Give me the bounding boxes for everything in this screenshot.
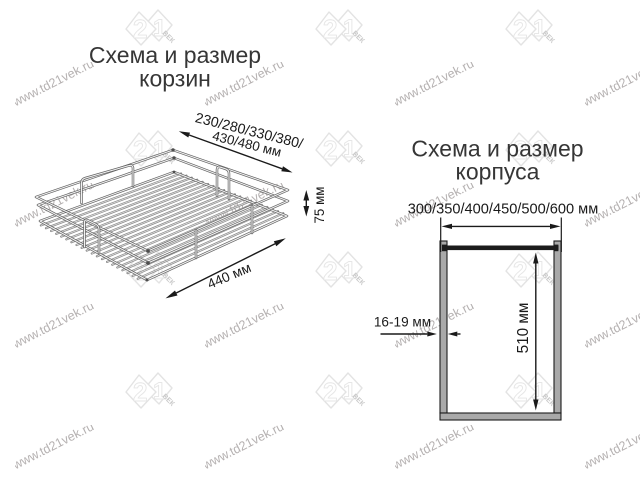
svg-text:75 мм: 75 мм — [312, 186, 327, 223]
svg-text:корпуса: корпуса — [456, 159, 540, 185]
svg-text:Схема и размер: Схема и размер — [89, 42, 261, 68]
svg-text:корзин: корзин — [139, 66, 211, 92]
svg-text:300/350/400/450/500/600 мм: 300/350/400/450/500/600 мм — [408, 202, 599, 218]
svg-text:16-19 мм: 16-19 мм — [374, 315, 431, 330]
svg-text:510 мм: 510 мм — [515, 303, 532, 354]
